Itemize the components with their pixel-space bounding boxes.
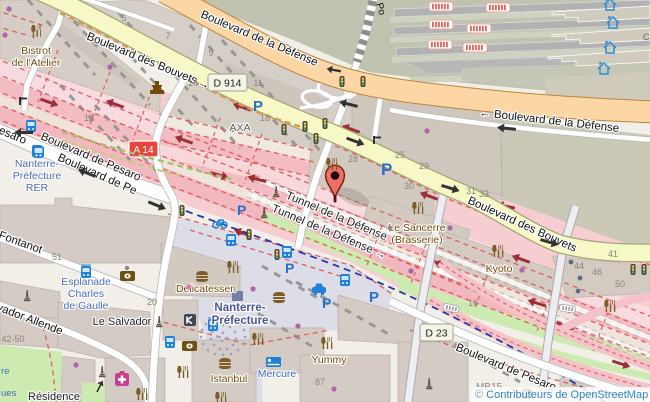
svg-text:5: 5 (121, 13, 126, 23)
svg-text:Yummy: Yummy (311, 354, 347, 366)
svg-text:33: 33 (479, 189, 489, 199)
svg-text:9: 9 (208, 48, 213, 58)
svg-text:RER: RER (26, 182, 49, 194)
svg-text:42-50: 42-50 (1, 334, 24, 344)
svg-text:Delicatessen: Delicatessen (176, 283, 236, 295)
svg-text:Kyoto: Kyoto (486, 263, 513, 275)
svg-text:P: P (285, 260, 294, 276)
svg-text:re: re (1, 366, 9, 377)
svg-text:46: 46 (592, 267, 602, 277)
svg-text:25: 25 (395, 150, 405, 160)
svg-text:D 23: D 23 (425, 328, 447, 340)
svg-text:(Brasserie): (Brasserie) (391, 234, 442, 246)
svg-text:14: 14 (188, 78, 198, 88)
svg-text:ues: ues (1, 388, 17, 399)
svg-text:Nanterre-: Nanterre- (214, 302, 265, 314)
svg-text:de l'Atelier: de l'Atelier (12, 57, 61, 69)
svg-text:Nanterre-: Nanterre- (15, 158, 60, 170)
svg-text:28: 28 (348, 154, 358, 164)
svg-text:50: 50 (615, 279, 625, 289)
svg-text:16: 16 (468, 298, 478, 308)
svg-text:31: 31 (466, 186, 476, 196)
svg-text:7: 7 (165, 31, 170, 41)
svg-text:20: 20 (147, 297, 157, 307)
svg-text:© Contributeurs de OpenStreetM: © Contributeurs de OpenStreetMap (475, 389, 648, 401)
svg-text:13: 13 (84, 113, 94, 123)
svg-text:D 914: D 914 (213, 78, 241, 90)
svg-text:A 14: A 14 (133, 145, 153, 156)
svg-text:Le Salvador: Le Salvador (93, 316, 152, 328)
svg-text:29: 29 (419, 161, 429, 171)
svg-text:P: P (237, 202, 246, 218)
svg-text:41: 41 (608, 249, 618, 259)
svg-text:P: P (253, 98, 263, 115)
svg-text:P: P (369, 289, 379, 306)
svg-text:11: 11 (253, 78, 262, 88)
svg-text:de Gaulle: de Gaulle (64, 300, 109, 312)
svg-text:C: C (643, 32, 650, 42)
svg-text:Résidence: Résidence (28, 391, 80, 402)
svg-text:30: 30 (404, 181, 414, 191)
svg-text:Mercure: Mercure (258, 368, 297, 380)
svg-text:44: 44 (574, 261, 584, 271)
svg-text:Préfecture: Préfecture (13, 170, 62, 182)
svg-text:51: 51 (52, 252, 62, 262)
svg-text:P: P (381, 160, 392, 179)
svg-text:P: P (322, 295, 331, 311)
svg-text:Istanbul: Istanbul (211, 373, 248, 385)
svg-text:Préfecture: Préfecture (212, 315, 269, 327)
svg-text:87: 87 (315, 377, 325, 387)
svg-text:Le Sancerre: Le Sancerre (388, 222, 445, 234)
svg-text:Bistrot: Bistrot (21, 45, 51, 57)
svg-text:AXA: AXA (229, 122, 250, 134)
svg-text:Charles: Charles (68, 288, 104, 300)
